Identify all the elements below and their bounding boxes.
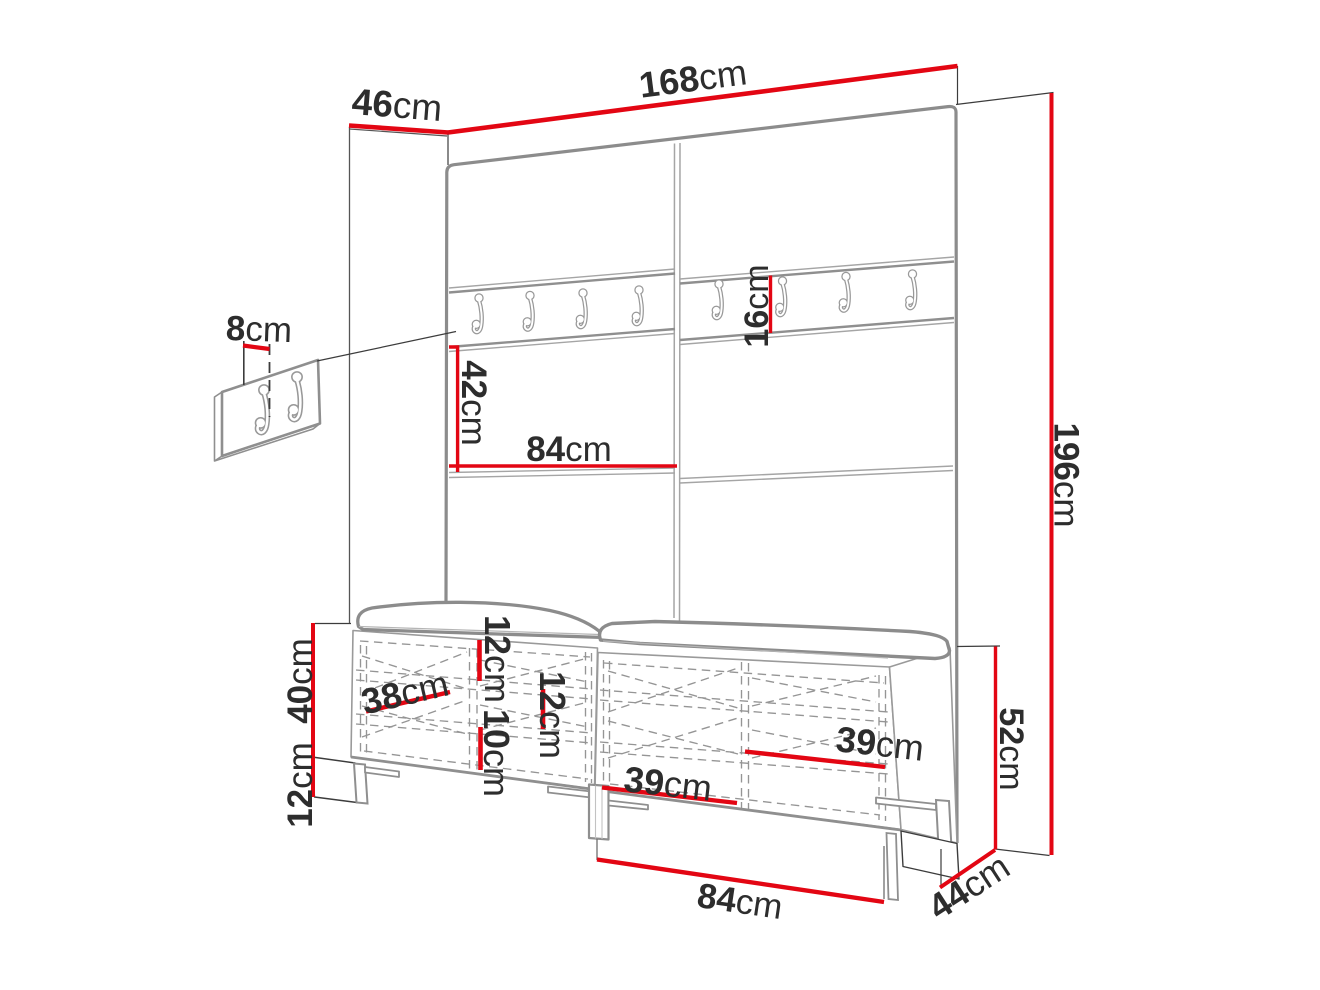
svg-text:8cm: 8cm	[225, 309, 292, 350]
svg-text:42cm: 42cm	[454, 360, 493, 446]
svg-text:12cm: 12cm	[532, 671, 573, 759]
svg-text:40cm: 40cm	[281, 638, 320, 724]
svg-text:10cm: 10cm	[476, 709, 517, 797]
svg-text:52cm: 52cm	[992, 707, 1030, 790]
svg-text:12cm: 12cm	[477, 615, 518, 703]
svg-text:39cm: 39cm	[622, 758, 714, 809]
svg-text:84cm: 84cm	[526, 430, 612, 469]
svg-text:46cm: 46cm	[350, 81, 443, 129]
svg-text:16cm: 16cm	[738, 264, 776, 347]
svg-text:196cm: 196cm	[1047, 422, 1086, 527]
svg-text:12cm: 12cm	[281, 742, 320, 828]
